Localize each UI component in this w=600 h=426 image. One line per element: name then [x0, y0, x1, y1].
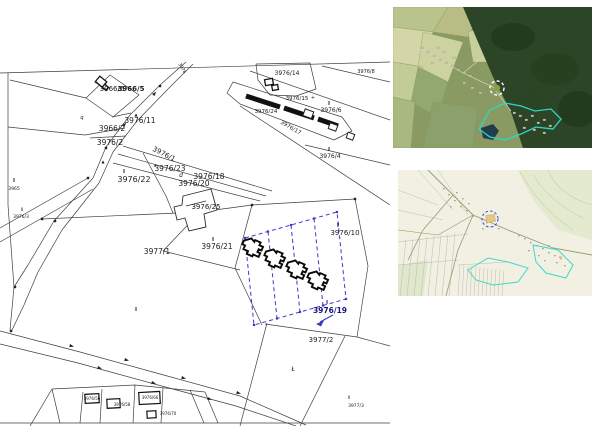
parcel-label: 3976/19: [313, 306, 347, 315]
parcel-label: 3976/22: [117, 175, 150, 184]
parcel-label: 3976/24: [255, 109, 278, 115]
parcel-label: 3977/1: [144, 247, 171, 256]
parcel-label: 3976: [176, 62, 187, 75]
topo-map-view[interactable]: [398, 170, 592, 296]
parcel-label: 3976/8: [357, 69, 375, 75]
parcel-label: 3976/1: [151, 145, 177, 163]
parcel-label: 3977/3: [348, 403, 364, 409]
parcel-label: ▲: [101, 159, 105, 164]
planned-house-footprints: [239, 236, 329, 292]
parcel-label: 3976/70: [160, 411, 177, 416]
parcel-label: 3976/21: [201, 242, 232, 251]
parcel-label: 3976/14: [275, 70, 300, 77]
parcel-label: q: [80, 115, 83, 121]
parcel-label: d: [179, 172, 183, 179]
parcel-label: 3976/66: [142, 395, 159, 400]
parcel-label: +: [311, 95, 315, 101]
arrow-icon: [316, 315, 333, 327]
satellite-view[interactable]: [393, 7, 592, 148]
parcel-label: 3966/2: [99, 124, 126, 133]
cadastral-viewer: 3966/63966/53976/113966/23976/23976/1397…: [0, 0, 600, 426]
parcel-label: 3965: [8, 186, 20, 192]
parcel-label: 3976/6: [320, 107, 341, 114]
parcel-label: 3976/11: [124, 116, 155, 125]
parcel-label: +: [94, 80, 98, 86]
parcel-label: II: [21, 207, 24, 213]
parcel-label: 3976/56: [84, 396, 101, 401]
parcel-label: 3976/2: [97, 138, 124, 147]
parcel-label: 3977/2: [309, 336, 334, 344]
parcel-label: 3976/25: [191, 203, 220, 211]
parcel-label: Ł: [290, 366, 295, 373]
parcel-label: II: [13, 178, 16, 184]
parcel-labels: 3966/63966/53976/113966/23976/23976/1397…: [8, 62, 375, 416]
parcel-label: 3976/10: [330, 229, 359, 237]
parcel-label: II: [135, 307, 138, 313]
parcel-boundaries: [0, 62, 390, 426]
parcel-label: a: [153, 163, 156, 169]
parcel-label: 3976/15: [286, 96, 309, 102]
cadastral-map[interactable]: 3966/63966/53976/113966/23976/23976/1397…: [0, 0, 390, 426]
parcel-label: 3976/20: [178, 179, 209, 188]
parcel-label: 3966/5: [118, 85, 145, 93]
parcel-label: 3976/58: [114, 402, 131, 407]
parcel-label: 3976/4: [319, 153, 340, 160]
parcel-label: II: [348, 395, 351, 401]
parcel-label: 3976/3: [13, 214, 29, 220]
